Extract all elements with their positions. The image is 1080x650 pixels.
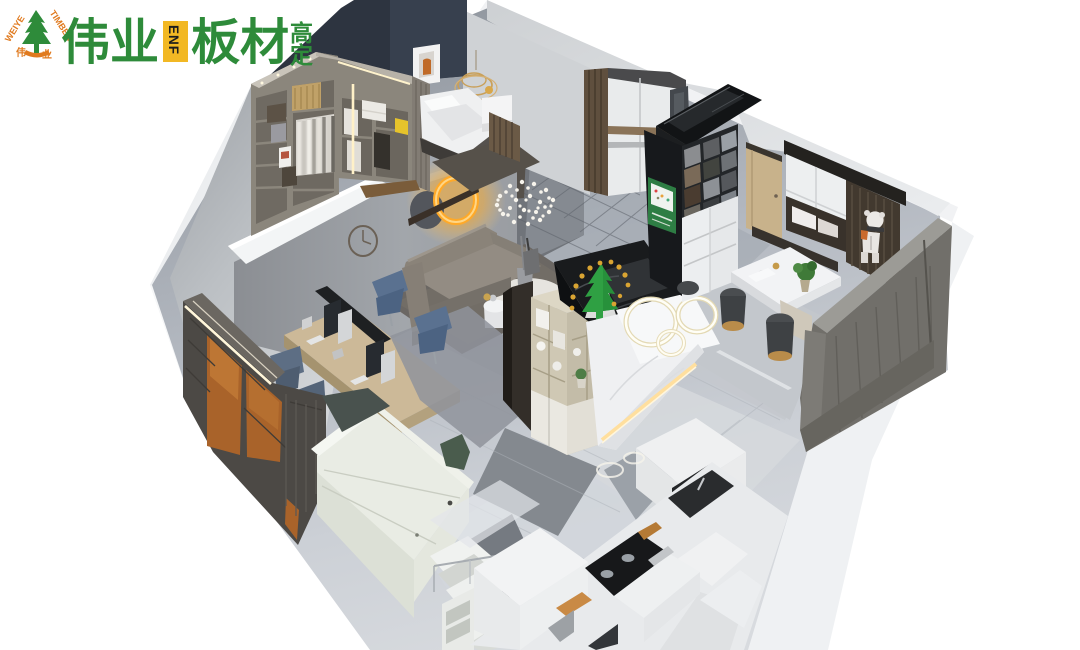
svg-text:定: 定 <box>290 42 313 68</box>
svg-text:板材: 板材 <box>191 16 289 70</box>
svg-text:伟: 伟 <box>16 46 26 59</box>
svg-text:ENF: ENF <box>166 25 181 55</box>
svg-text:伟业: 伟业 <box>61 16 159 70</box>
svg-text:业: 业 <box>42 48 52 61</box>
